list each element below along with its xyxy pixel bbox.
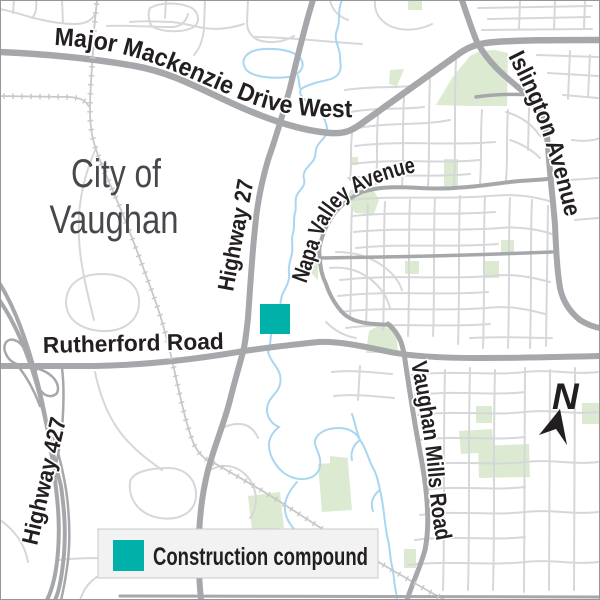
- svg-text:Rutherford Road: Rutherford Road: [43, 328, 225, 358]
- svg-text:N: N: [552, 376, 580, 417]
- svg-text:Construction compound: Construction compound: [153, 543, 368, 571]
- svg-text:City of: City of: [71, 152, 162, 196]
- svg-text:Vaughan: Vaughan: [50, 198, 179, 242]
